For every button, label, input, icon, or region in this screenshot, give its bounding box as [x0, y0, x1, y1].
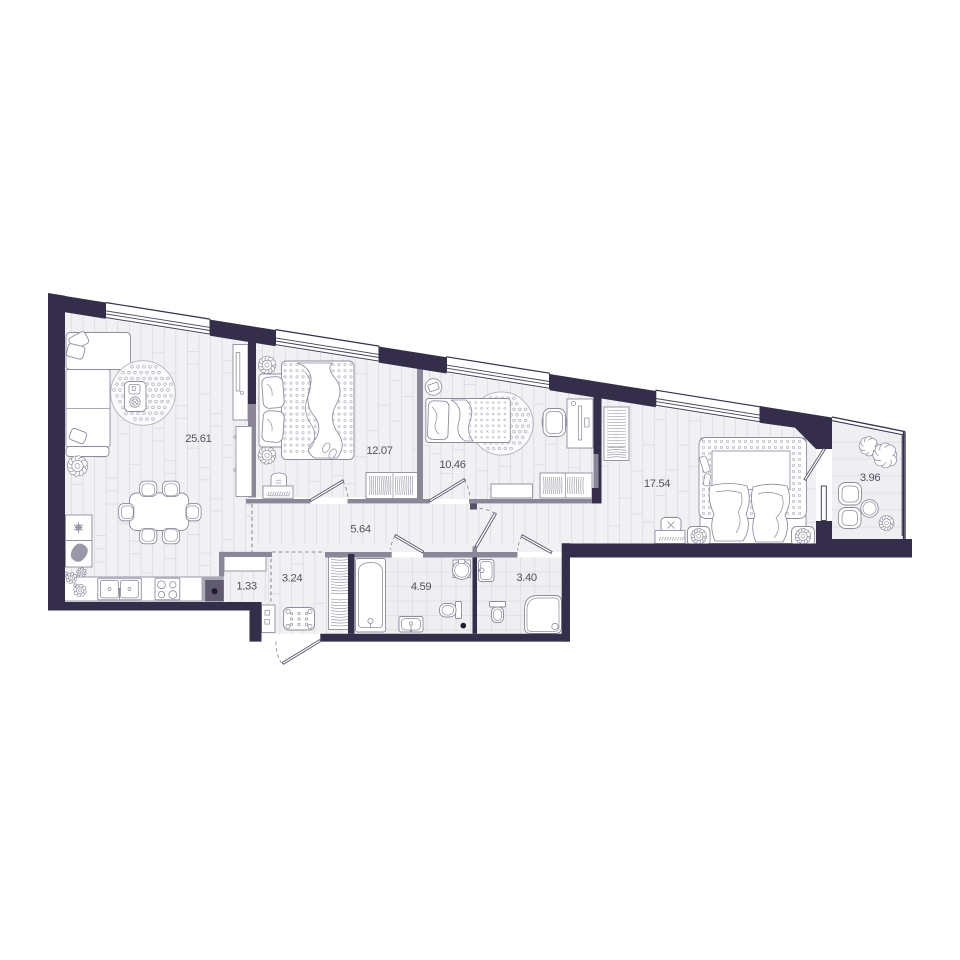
- svg-text:4.59: 4.59: [411, 581, 432, 593]
- svg-text:5.64: 5.64: [350, 523, 371, 535]
- svg-text:3.40: 3.40: [516, 572, 537, 584]
- svg-text:3.96: 3.96: [860, 472, 881, 484]
- svg-text:17.54: 17.54: [644, 478, 670, 490]
- svg-text:25.61: 25.61: [185, 433, 211, 445]
- svg-text:1.33: 1.33: [236, 580, 257, 592]
- svg-text:12.07: 12.07: [366, 445, 392, 457]
- svg-text:10.46: 10.46: [439, 459, 465, 471]
- svg-text:3.24: 3.24: [282, 572, 303, 584]
